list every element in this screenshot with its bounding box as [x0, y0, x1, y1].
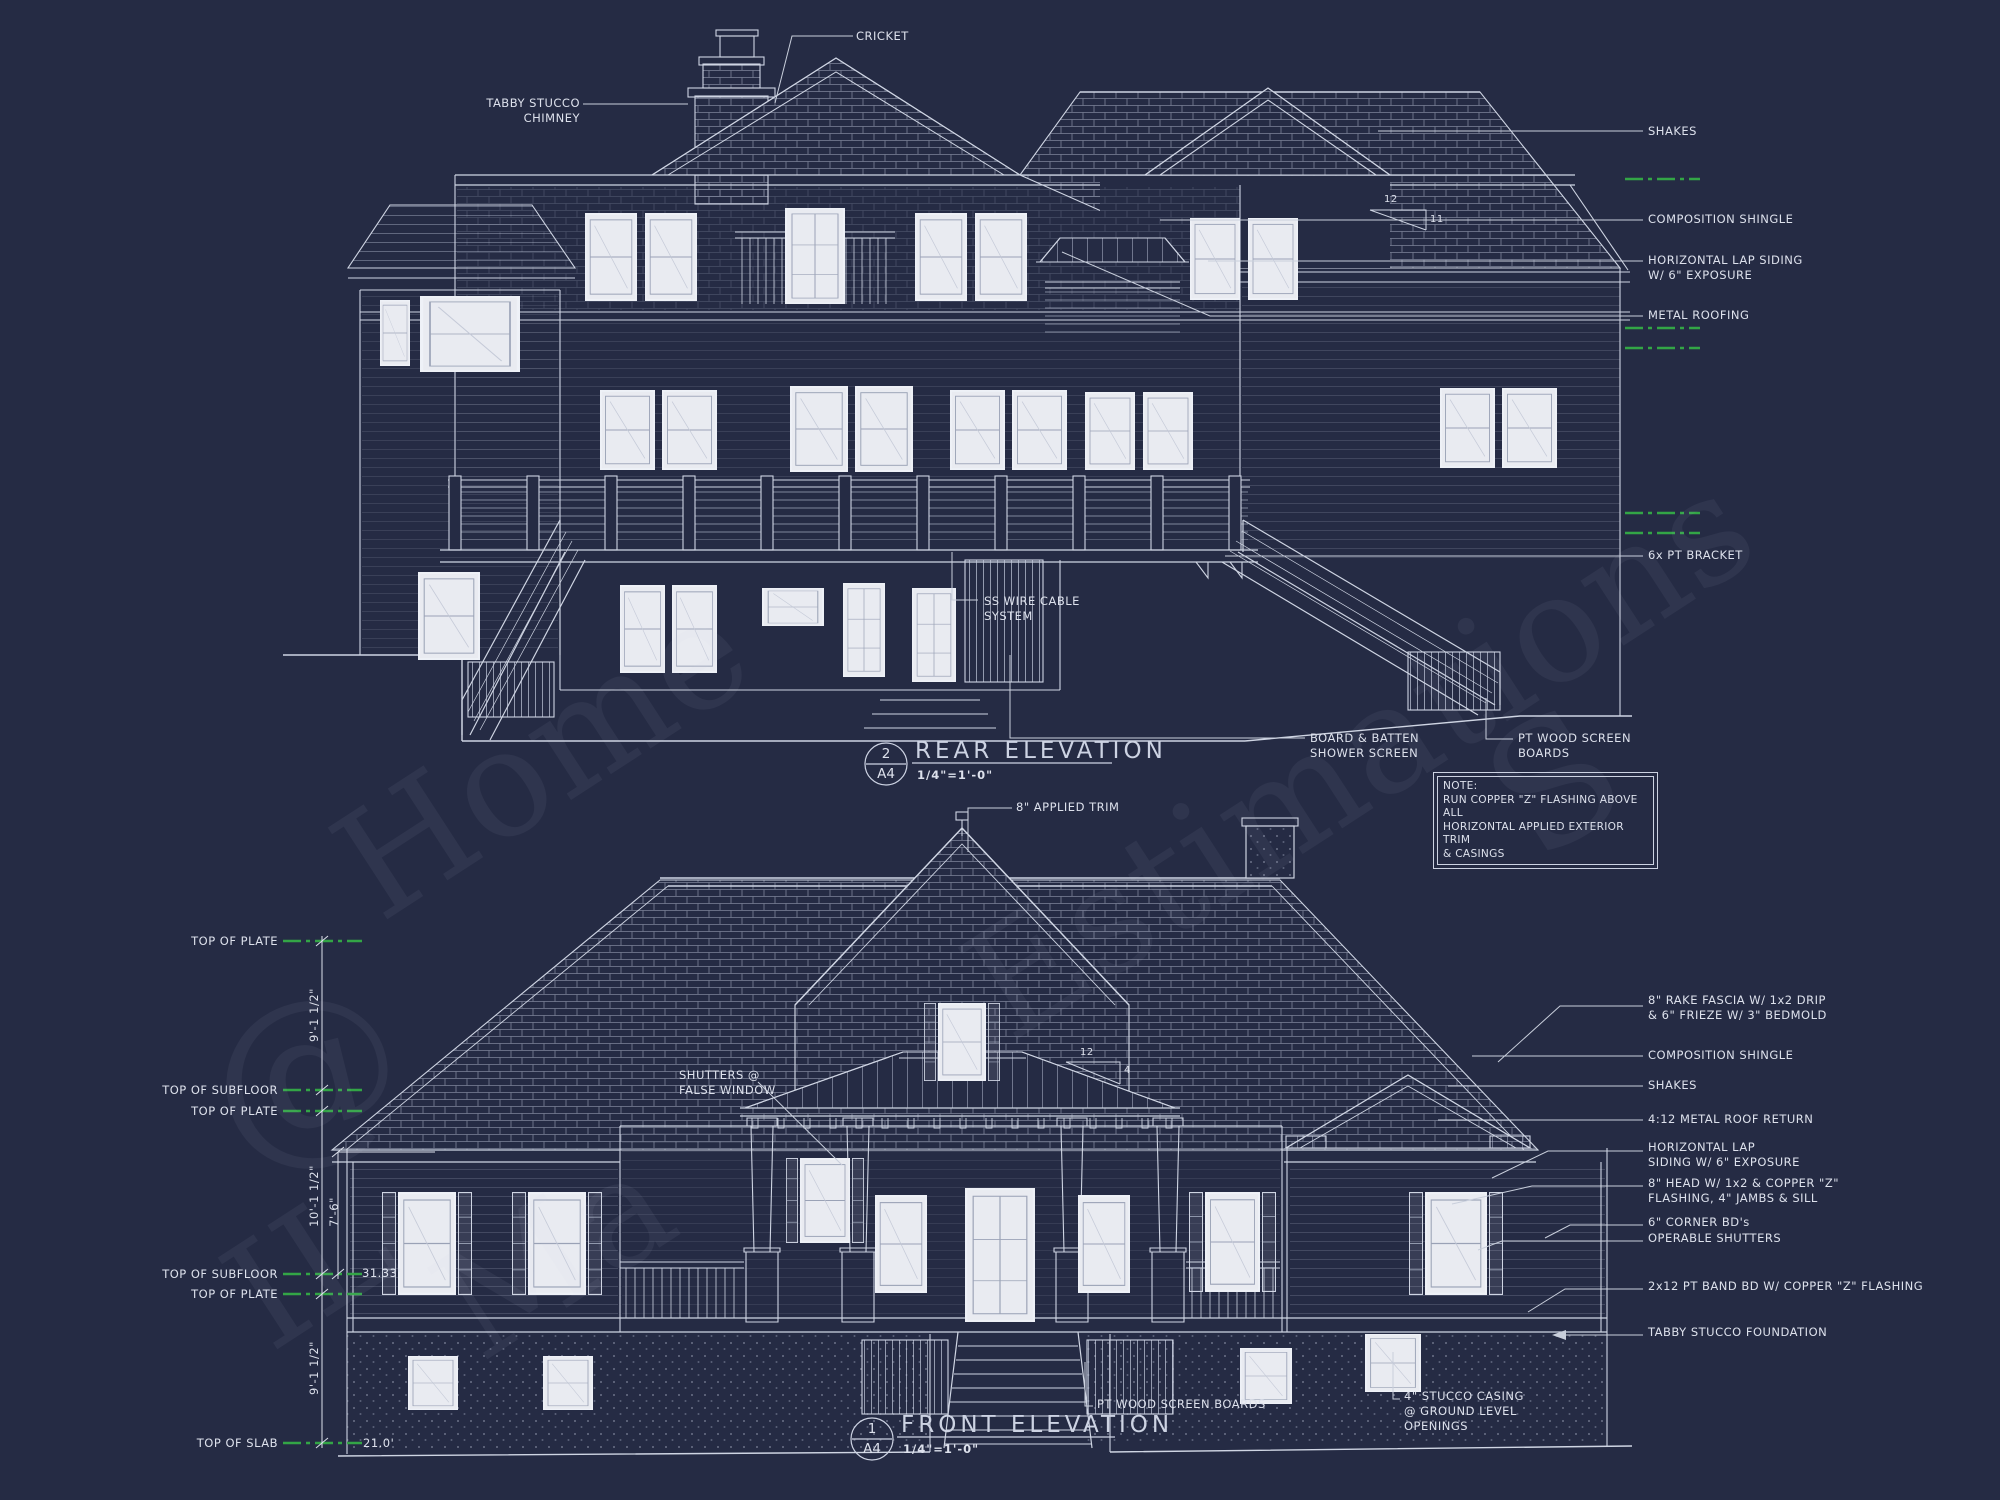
- level-top-of-slab: TOP OF SLAB: [197, 1436, 278, 1451]
- callout-rake-fascia: 8" RAKE FASCIA W/ 1x2 DRIP & 6" FRIEZE W…: [1648, 993, 1827, 1023]
- rear-pitch-rise: 11: [1430, 213, 1444, 226]
- callout-metal-roofing: METAL ROOFING: [1648, 308, 1749, 323]
- front-detail-number: 1: [863, 1421, 881, 1437]
- rear-sheet-number: A4: [872, 766, 900, 782]
- callout-operable-shutters: OPERABLE SHUTTERS: [1648, 1231, 1781, 1246]
- front-title: FRONT ELEVATION: [901, 1412, 1173, 1438]
- callout-metal-roof-return: 4:12 METAL ROOF RETURN: [1648, 1112, 1813, 1127]
- callout-composition-shingle-front: COMPOSITION SHINGLE: [1648, 1048, 1793, 1063]
- blueprint-sheet: @ Home Estimations IL Ma S: [0, 0, 2000, 1500]
- callout-tabby-stucco-chimney: TABBY STUCCO CHIMNEY: [486, 96, 580, 126]
- level-top-of-subfloor-main: TOP OF SUBFLOOR: [162, 1267, 278, 1282]
- callout-false-window: SHUTTERS @ FALSE WINDOW: [679, 1068, 776, 1098]
- callout-applied-trim: 8" APPLIED TRIM: [1016, 800, 1119, 815]
- dim-height-porch: 7'-6": [327, 1197, 341, 1227]
- callout-lap-siding-front: HORIZONTAL LAP SIDING W/ 6" EXPOSURE: [1648, 1140, 1800, 1170]
- callout-pt-screen-rear: PT WOOD SCREEN BOARDS: [1518, 731, 1631, 761]
- callout-stucco-casing: 4" STUCCO CASING @ GROUND LEVEL OPENINGS: [1404, 1389, 1524, 1434]
- callout-pt-screen-front: PT WOOD SCREEN BOARDS: [1097, 1397, 1266, 1412]
- callout-cricket: CRICKET: [856, 29, 909, 44]
- front-scale: 1/4"=1'-0": [903, 1442, 979, 1456]
- rear-pitch-run: 12: [1384, 193, 1398, 206]
- callout-ss-wire-cable: SS WIRE CABLE SYSTEM: [984, 594, 1080, 624]
- dim-height-lower: 9'-1 1/2": [307, 1341, 321, 1395]
- dim-height-upper: 9'-1 1/2": [307, 988, 321, 1042]
- note-box: NOTE: RUN COPPER "Z" FLASHING ABOVE ALL …: [1433, 772, 1658, 869]
- dim-height-main: 10'-1 1/2": [307, 1165, 321, 1227]
- rear-title: REAR ELEVATION: [915, 738, 1167, 764]
- callout-shakes-rear: SHAKES: [1648, 124, 1697, 139]
- callout-band-bd: 2x12 PT BAND BD W/ COPPER "Z" FLASHING: [1648, 1279, 1923, 1294]
- front-pitch-rise: 4: [1124, 1064, 1131, 1077]
- level-top-of-plate-upper: TOP OF PLATE: [191, 934, 278, 949]
- callout-tabby-foundation: TABBY STUCCO FOUNDATION: [1648, 1325, 1827, 1340]
- rear-scale: 1/4"=1'-0": [917, 768, 993, 782]
- callout-head-flashing: 8" HEAD W/ 1x2 & COPPER "Z" FLASHING, 4"…: [1648, 1176, 1839, 1206]
- level-top-of-subfloor-upper: TOP OF SUBFLOOR: [162, 1083, 278, 1098]
- callout-lap-siding-rear: HORIZONTAL LAP SIDING W/ 6" EXPOSURE: [1648, 253, 1803, 283]
- rear-detail-number: 2: [877, 746, 895, 762]
- callout-pt-bracket: 6x PT BRACKET: [1648, 548, 1743, 563]
- callout-corner-bds: 6" CORNER BD's: [1648, 1215, 1750, 1230]
- callout-shakes-front: SHAKES: [1648, 1078, 1697, 1093]
- dim-length-upper: 31.33': [362, 1266, 401, 1281]
- rear-elevation-drawing: [283, 30, 1632, 741]
- level-top-of-plate-main: TOP OF PLATE: [191, 1104, 278, 1119]
- level-top-of-plate-lower: TOP OF PLATE: [191, 1287, 278, 1302]
- dim-length-lower: 21.0': [363, 1436, 394, 1451]
- callout-composition-shingle-rear: COMPOSITION SHINGLE: [1648, 212, 1793, 227]
- callout-board-batten: BOARD & BATTEN SHOWER SCREEN: [1310, 731, 1419, 761]
- front-sheet-number: A4: [858, 1441, 886, 1457]
- front-pitch-run: 12: [1080, 1046, 1094, 1059]
- front-elevation-drawing: [332, 812, 1632, 1456]
